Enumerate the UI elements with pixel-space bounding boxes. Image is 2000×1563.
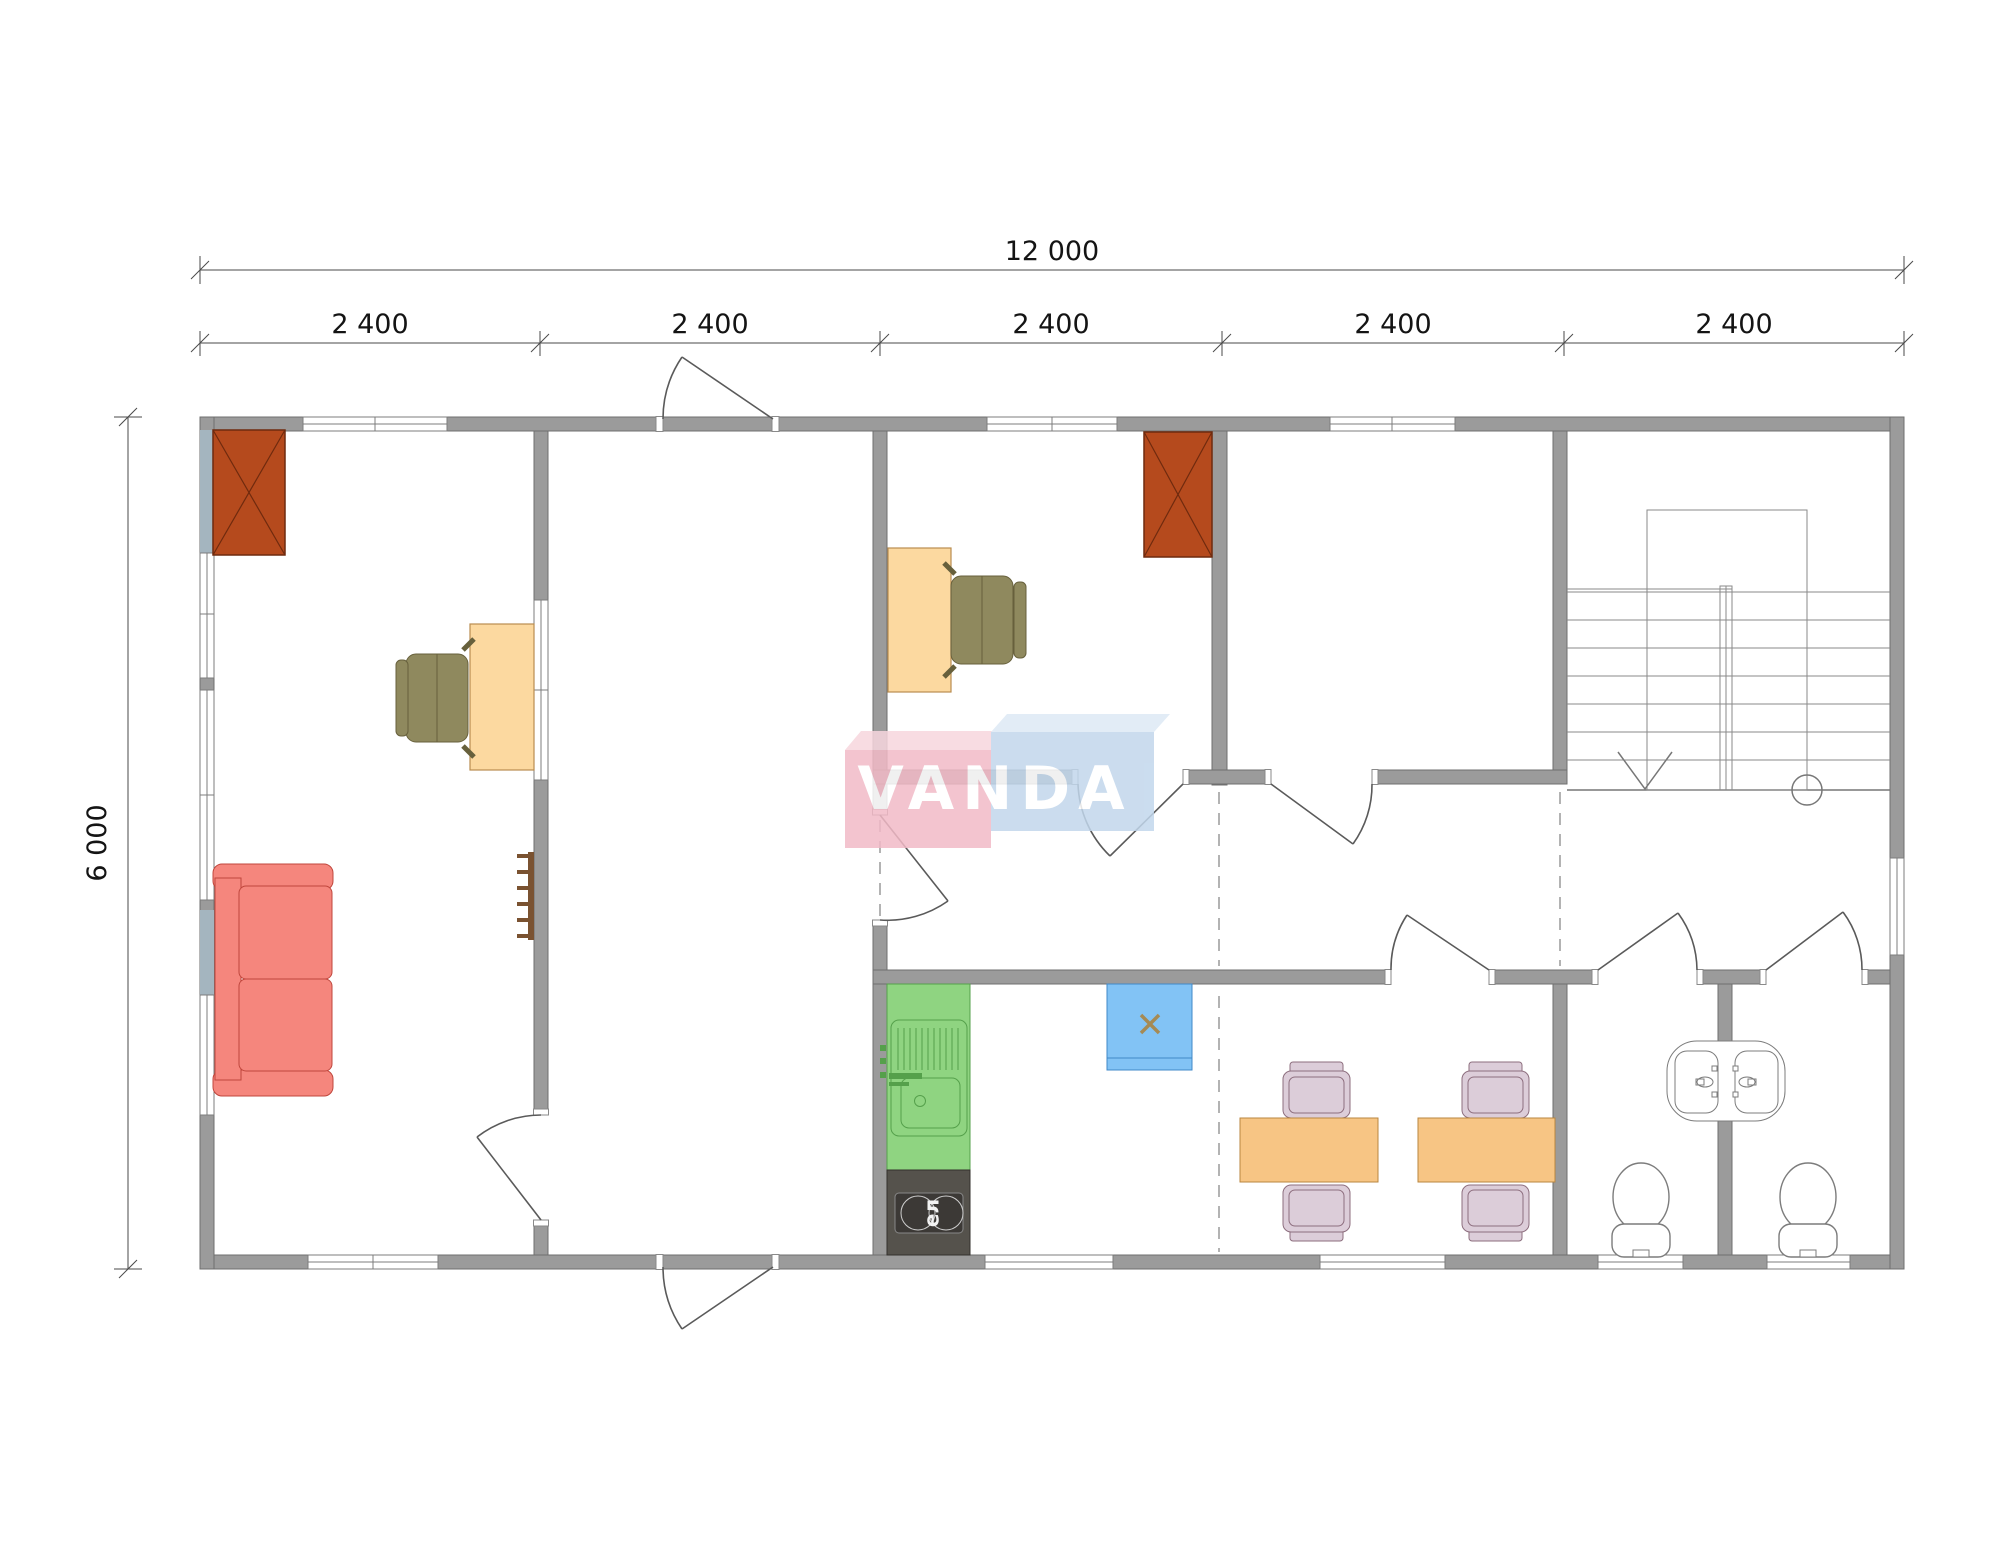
- wall-corridor-south-d: [1868, 970, 1890, 984]
- wall-1-upper: [534, 431, 548, 600]
- wall-3: [1212, 431, 1227, 785]
- windows: [200, 417, 1904, 1269]
- window-left-2: [200, 690, 214, 900]
- door-room1: [477, 1115, 541, 1220]
- window-left-1: [200, 553, 214, 678]
- walls: [200, 417, 1904, 1269]
- door-room4: [1271, 784, 1372, 844]
- stove-label: ел: [920, 1199, 944, 1227]
- wall-corridor-south-c: [1703, 970, 1760, 984]
- glass-pier-top: [200, 430, 214, 553]
- window-left-3: [200, 995, 214, 1115]
- wall-1-mid: [534, 780, 548, 1109]
- door-dining: [1391, 915, 1489, 970]
- dining-table-2: [1418, 1118, 1555, 1182]
- kitchen-counter: [880, 984, 970, 1170]
- dim-seg-2: 2 400: [671, 309, 748, 340]
- wall-corridor-south-a: [873, 970, 1385, 984]
- window-dining-bottom: [1320, 1255, 1445, 1269]
- window-room1-bottom: [308, 1255, 438, 1269]
- module-boundary-lines: [880, 792, 1560, 1252]
- dim-seg-4: 2 400: [1354, 309, 1431, 340]
- desk-room1: [470, 624, 534, 770]
- water-heater: [1107, 984, 1192, 1070]
- logo-box-blue-top: [991, 714, 1170, 732]
- wall-room4-south: [1378, 770, 1567, 784]
- kitchen-stove: ел: [887, 1170, 970, 1255]
- window-room4-top: [1330, 417, 1455, 431]
- dim-total: 12 000: [1005, 236, 1099, 267]
- toilet-wc1: [1612, 1163, 1670, 1257]
- dining-set-1: [1240, 1062, 1378, 1241]
- logo-text: VANDA: [857, 754, 1132, 824]
- dim-seg-1: 2 400: [331, 309, 408, 340]
- window-room3-top: [987, 417, 1117, 431]
- door-entrance-bottom: [663, 1267, 773, 1329]
- toilet-wc2: [1779, 1163, 1837, 1257]
- door-entrance-top: [663, 357, 773, 419]
- window-wall1-interior: [534, 600, 548, 780]
- dining-table-1: [1240, 1118, 1378, 1182]
- window-room1-top: [303, 417, 447, 431]
- floor-plan-drawing: 12 000 2 400 2 400 2 400 2 400 2 400 6 0: [0, 0, 2000, 1563]
- vanda-watermark: VANDA: [845, 714, 1170, 848]
- fireplace-room1: [213, 430, 285, 555]
- desk-room3: [888, 548, 951, 692]
- door-wc2: [1766, 912, 1862, 970]
- kitchen-faucet: [889, 1073, 922, 1079]
- office-chair-room1: [396, 639, 474, 757]
- staircase: [1567, 510, 1890, 805]
- dim-seg-3: 2 400: [1012, 309, 1089, 340]
- door-wc1: [1598, 913, 1697, 970]
- dim-seg-5: 2 400: [1695, 309, 1772, 340]
- stair-flight-outline: [1647, 510, 1807, 790]
- wc-sinks: [1667, 1041, 1785, 1121]
- fireplace-room3: [1144, 432, 1212, 557]
- wall-4-upper: [1553, 431, 1567, 783]
- floor-plan-page: 12 000 2 400 2 400 2 400 2 400 2 400 6 0: [0, 0, 2000, 1563]
- sofa: [213, 864, 333, 1096]
- wall-right: [1890, 417, 1904, 1269]
- dim-height: 6 000: [82, 804, 113, 881]
- dining-set-2: [1418, 1062, 1555, 1241]
- wall-corridor-south-b: [1495, 970, 1592, 984]
- office-chair-room3: [944, 563, 1026, 677]
- logo-box-pink-top: [845, 731, 1007, 750]
- glass-pier-mid: [200, 910, 214, 995]
- window-kitchen-bottom: [985, 1255, 1113, 1269]
- window-right-corridor: [1890, 858, 1904, 955]
- wall-room34-south-mid: [1189, 770, 1265, 784]
- stair-direction-arrow: [1618, 752, 1672, 789]
- coat-rack: [517, 852, 534, 940]
